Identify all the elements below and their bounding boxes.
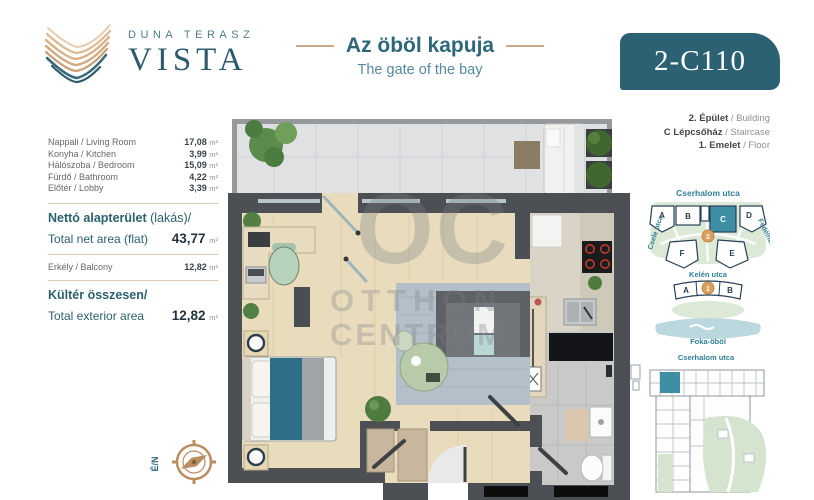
svg-text:B: B (685, 212, 691, 221)
watermark-logo: OC (356, 179, 510, 279)
watermark-text: CENTRUM (330, 319, 506, 350)
room-row: Előtér / Lobby 3,39 m² (48, 183, 218, 195)
net-area-title: Nettó alapterület (lakás)/ (48, 211, 218, 226)
monitor-icon (248, 232, 270, 247)
compass-icon: É/N (146, 430, 228, 494)
net-area-row: Total net area (flat) 43,77 m² (48, 231, 218, 246)
floor-overview-drawing: Cserhalom utca (648, 350, 810, 498)
shower-head-icon (606, 365, 612, 377)
brand-text: DUNA TERASZ VISTA (128, 29, 254, 77)
room-label: Konyha / Kitchen (48, 149, 116, 161)
street-label-top: Cserhalom utca (676, 188, 740, 198)
room-label: Nappali / Living Room (48, 137, 136, 149)
kitchen-cabinet (532, 215, 562, 247)
street-label-top: Cserhalom utca (678, 353, 735, 362)
watermark-text: OTTHON (330, 285, 503, 316)
site-map: Cserhalom utca A B D (646, 184, 770, 348)
living-plant-icon (365, 396, 391, 422)
balcony-mat (514, 141, 540, 169)
indoor-plant-icon (243, 303, 259, 319)
svg-text:1: 1 (706, 286, 710, 293)
outdoor-sofa (544, 124, 584, 194)
svg-text:D: D (746, 211, 752, 220)
net-area-label-en: Total net area (flat) (48, 232, 148, 246)
room-row: Hálószoba / Bedroom 15,09 m² (48, 160, 218, 172)
cooktop-icon (582, 241, 612, 273)
floor-overview-map: Cserhalom utca (648, 350, 810, 498)
exterior-row: Total exterior area 12,82 m² (48, 308, 218, 323)
double-bed (243, 357, 336, 441)
nightstand (244, 445, 268, 470)
shower-area (549, 333, 613, 361)
highlighted-unit (660, 372, 680, 393)
compass: É/N (146, 430, 228, 494)
slogan-hungarian: Az öböl kapuja (346, 34, 494, 58)
room-label: Hálószoba / Bedroom (48, 160, 135, 172)
divider (48, 203, 218, 204)
brand-line-name: VISTA (128, 44, 254, 77)
room-row: Fürdő / Bathroom 4,22 m² (48, 172, 218, 184)
toilet-icon (581, 455, 612, 481)
divider (48, 254, 218, 255)
site-map-drawing: Cserhalom utca A B D (646, 184, 770, 348)
brand-logo: DUNA TERASZ VISTA (38, 20, 254, 86)
section-marker-icon (631, 365, 640, 390)
entry-opening (428, 483, 468, 500)
nightstand (244, 331, 268, 356)
balcony-label: Erkély / Balcony (48, 262, 113, 272)
room-label: Előtér / Lobby (48, 183, 104, 195)
divider (48, 280, 218, 281)
street-label-middle: Kelén utca (689, 270, 728, 279)
brand-line-top: DUNA TERASZ (128, 29, 254, 41)
room-label: Fürdő / Bathroom (48, 172, 118, 184)
compass-north-label: É/N (150, 456, 160, 471)
desk-chair (269, 243, 299, 285)
svg-text:E: E (729, 249, 735, 258)
svg-text:2: 2 (706, 234, 710, 241)
wardrobe (398, 429, 427, 481)
exterior-title: Kültér összesen/ (48, 288, 218, 303)
bay-label: Foka-öböl (690, 337, 726, 346)
apartment-floor-plan: OC OTTHON CENTRUM (228, 115, 641, 500)
title-dash-right (506, 45, 544, 47)
vista-swoosh-icon (38, 20, 116, 86)
svg-text:A: A (683, 286, 689, 295)
slogan-english: The gate of the bay (288, 62, 552, 78)
room-row: Nappali / Living Room 17,08 m² (48, 137, 218, 149)
room-row: Konyha / Kitchen 3,99 m² (48, 149, 218, 161)
title-dash-left (296, 45, 334, 47)
kitchen-sink-icon (564, 299, 596, 325)
svg-text:C: C (720, 215, 726, 224)
unit-code-badge: 2-C110 (620, 33, 780, 90)
bath-mat (566, 409, 588, 441)
balcony-row: Erkély / Balcony 12,82 m² (48, 262, 218, 272)
svg-text:F: F (680, 249, 685, 258)
area-measurements-panel: Nappali / Living Room 17,08 m² Konyha / … (48, 137, 218, 323)
kitchen-plant-icon (588, 276, 602, 290)
doormat (554, 486, 608, 497)
wardrobe (367, 429, 394, 472)
tv-cabinet (294, 287, 310, 327)
floorplan-brochure-page: DUNA TERASZ VISTA Az öböl kapuja The gat… (0, 0, 814, 500)
exterior-label-en: Total exterior area (48, 309, 144, 323)
washbasin-icon (590, 407, 612, 437)
doormat (484, 486, 528, 497)
project-slogan: Az öböl kapuja The gate of the bay (288, 34, 552, 78)
svg-text:B: B (727, 286, 733, 295)
